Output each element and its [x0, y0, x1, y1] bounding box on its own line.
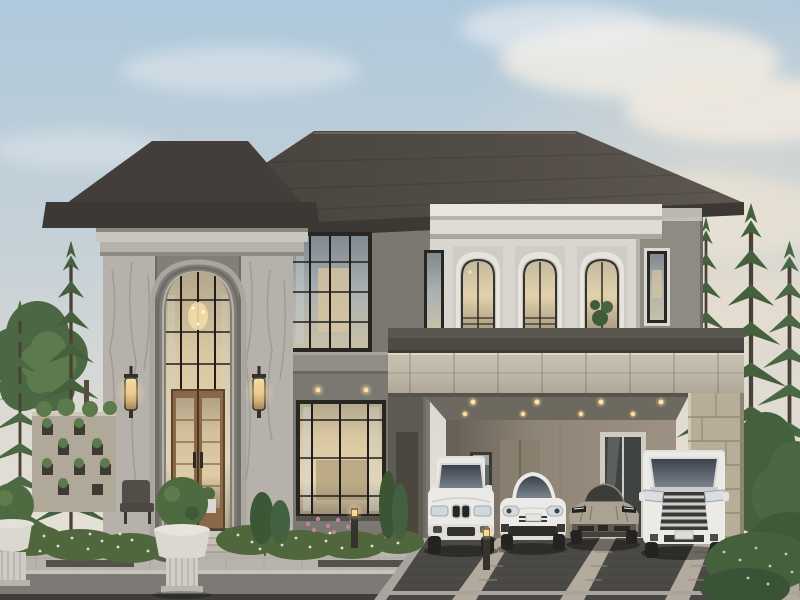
- bay-arch-window-2: [515, 246, 565, 331]
- tower-cornice: [96, 232, 308, 242]
- license-plate: [526, 514, 541, 521]
- bay-window-feature: [430, 204, 662, 349]
- wheel: [645, 542, 658, 558]
- tower-roof-fascia: [42, 202, 320, 228]
- wheel: [626, 530, 637, 544]
- wheel: [553, 534, 565, 550]
- license-plate: [675, 531, 693, 539]
- wheel: [501, 534, 513, 550]
- stone-band: [388, 353, 744, 393]
- headlight: [704, 490, 724, 502]
- stone-screen-wall: [32, 398, 117, 512]
- carport-cornice: [388, 338, 744, 350]
- windshield: [438, 464, 484, 490]
- kidney-grille: [462, 505, 471, 518]
- kidney-grille: [452, 505, 461, 518]
- bay-arch-window-3: [577, 246, 627, 331]
- headlight: [474, 506, 491, 516]
- narrow-window-left: [424, 250, 444, 334]
- windshield: [650, 458, 718, 488]
- topiary-ball: [156, 477, 208, 529]
- headlight: [644, 490, 664, 502]
- car-minivan-white: [639, 450, 729, 560]
- bay-cornice: [430, 204, 662, 216]
- living-room-window: [296, 400, 386, 521]
- door-handle: [200, 452, 203, 468]
- chandelier: [188, 302, 208, 330]
- bay-arch-window-1: [453, 246, 503, 331]
- rendered-photo: [0, 0, 800, 600]
- narrow-window-right: [644, 248, 670, 326]
- wheel: [571, 530, 582, 544]
- interior-furniture: [316, 460, 368, 500]
- wheel: [428, 536, 441, 554]
- headlight: [431, 506, 448, 516]
- door-handle: [193, 452, 196, 468]
